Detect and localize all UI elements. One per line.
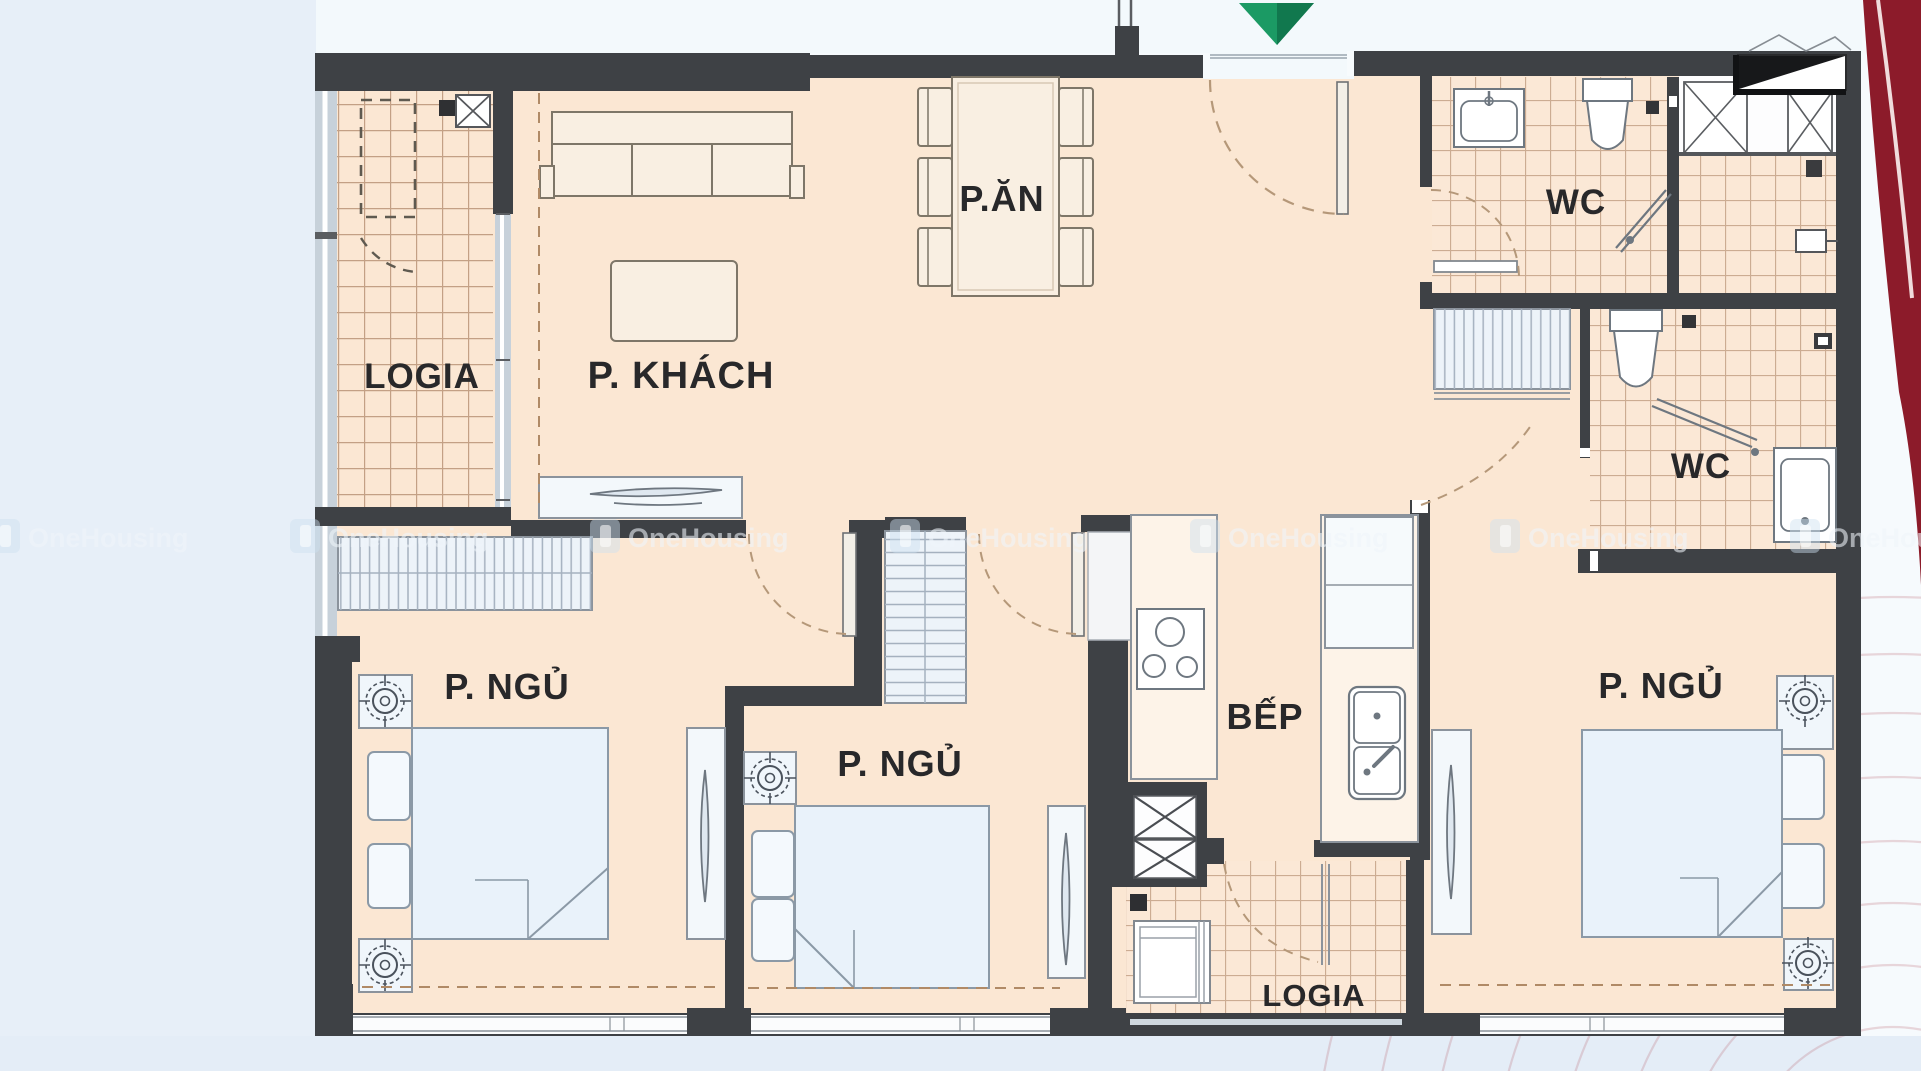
svg-text:OneHousing: OneHousing (628, 523, 789, 553)
svg-text:OneHousing: OneHousing (28, 523, 189, 553)
svg-text:OneHousing: OneHousing (928, 523, 1089, 553)
svg-text:OneHousing: OneHousing (328, 523, 489, 553)
svg-text:LOGIA: LOGIA (1262, 978, 1365, 1013)
svg-text:LOGIA: LOGIA (364, 357, 480, 396)
svg-text:OneHousing: OneHousing (1528, 523, 1689, 553)
svg-text:OneHousing: OneHousing (1228, 523, 1389, 553)
svg-text:WC: WC (1671, 447, 1731, 486)
svg-text:P. NGỦ: P. NGỦ (444, 665, 569, 707)
svg-text:P. NGỦ: P. NGỦ (1598, 664, 1723, 706)
svg-text:WC: WC (1546, 183, 1606, 222)
svg-text:BẾP: BẾP (1226, 696, 1303, 737)
svg-text:P. KHÁCH: P. KHÁCH (588, 353, 775, 397)
svg-text:OneHousing: OneHousing (1828, 523, 1921, 553)
svg-text:P.ĂN: P.ĂN (959, 178, 1044, 219)
svg-text:P. NGỦ: P. NGỦ (837, 742, 962, 784)
